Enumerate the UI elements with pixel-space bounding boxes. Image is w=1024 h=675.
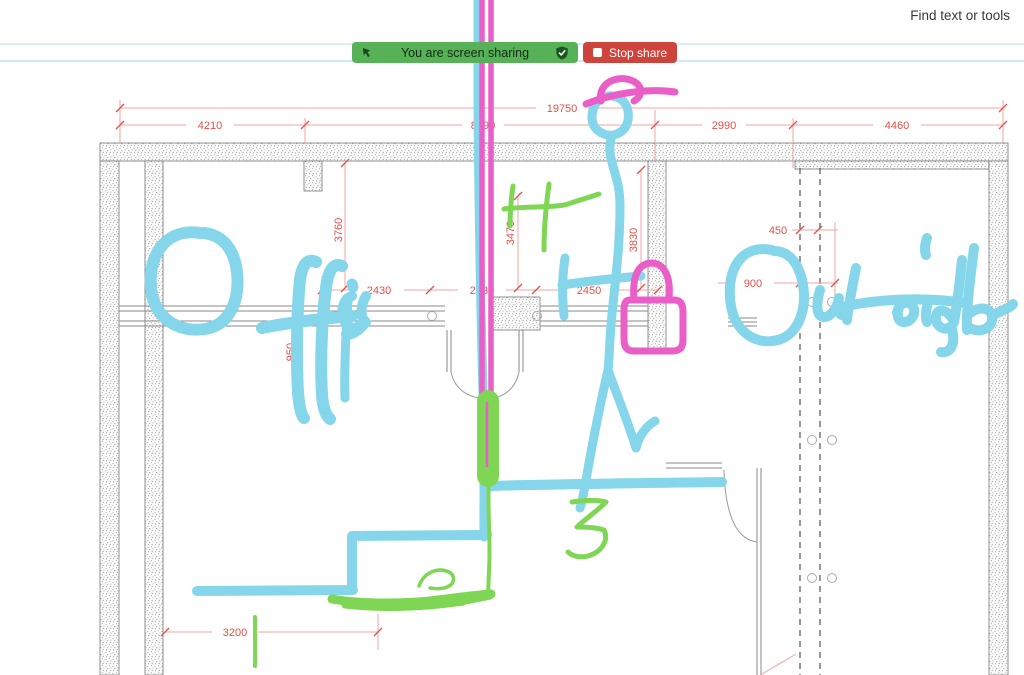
wall-right — [989, 161, 1008, 675]
wall-top-step — [795, 161, 989, 169]
outside-annotation — [730, 238, 1013, 352]
wall-stub — [304, 161, 322, 191]
wall-left — [100, 161, 119, 675]
screen-sharing-status: You are screen sharing — [352, 42, 578, 63]
wall-left-inner — [145, 161, 163, 675]
dashed-reference-lines — [800, 168, 820, 675]
wall-middle — [648, 161, 666, 352]
find-text-or-tools-button[interactable]: Find text or tools — [910, 8, 1010, 23]
stop-icon — [593, 48, 602, 57]
dimension-lines — [116, 100, 1007, 650]
dim-450: 450 — [769, 225, 787, 237]
floor-plan-canvas: 19750 4210 8090 2990 4460 2430 2430 2450… — [0, 0, 1024, 675]
cursor-arrow-icon — [361, 46, 375, 59]
cyan-step-stroke — [197, 535, 487, 591]
wall-top — [100, 143, 1008, 161]
cyan-horizontal-stroke — [489, 482, 722, 486]
screen-sharing-message: You are screen sharing — [401, 46, 529, 60]
dim-overall: 19750 — [547, 103, 578, 115]
green-zigzag — [568, 501, 606, 557]
dim-4210: 4210 — [198, 120, 222, 132]
magenta-hat — [586, 79, 675, 104]
dim-3200: 3200 — [223, 627, 247, 639]
dimension-ticks — [116, 104, 1007, 636]
dim-3830: 3830 — [628, 228, 640, 252]
shield-check-icon — [555, 46, 569, 60]
dim-4460: 4460 — [885, 120, 909, 132]
dim-900: 900 — [744, 278, 762, 290]
stop-share-button[interactable]: Stop share — [583, 42, 677, 63]
screen-share-viewport: 19750 4210 8090 2990 4460 2430 2430 2450… — [0, 0, 1024, 675]
dim-3760: 3760 — [333, 218, 345, 242]
screen-sharing-banner: You are screen sharing Stop share — [352, 42, 677, 63]
dim-2990: 2990 — [712, 120, 736, 132]
stop-share-label: Stop share — [609, 46, 667, 60]
